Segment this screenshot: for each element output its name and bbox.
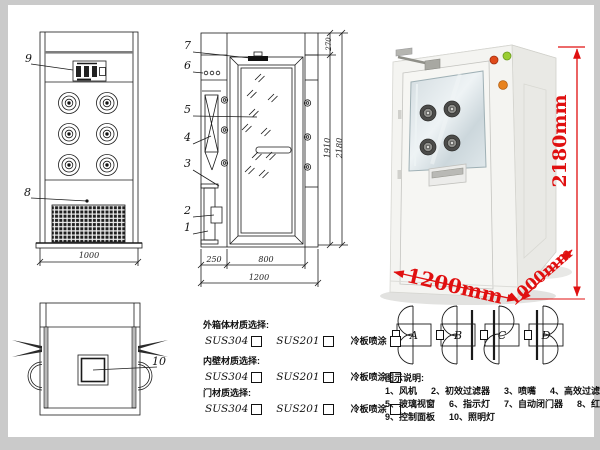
legend-title: 图示说明:	[385, 373, 424, 383]
dim-side-left: 250	[199, 256, 229, 264]
dim-side-door-height: 1910	[324, 128, 332, 168]
door-config-checkbox-b[interactable]	[436, 330, 444, 340]
dim-front-width: 1000	[69, 252, 109, 260]
part-label-3: 3	[184, 158, 191, 169]
photo-glass-window	[409, 71, 486, 171]
part-label-6: 6	[184, 60, 191, 71]
door-config-letter-a: A	[397, 329, 431, 342]
part-label-7: 7	[184, 40, 191, 51]
photo-dim-height: 2180mm	[549, 81, 571, 201]
legend-item: 5、玻璃视窗	[385, 399, 435, 409]
legend-item: 4、高效过滤器	[550, 386, 600, 396]
legend-item: 10、照明灯	[449, 412, 495, 422]
door-config-checkbox-c[interactable]	[480, 330, 488, 340]
legend-item: 9、控制面板	[385, 412, 435, 422]
option-sus201: SUS201	[276, 404, 319, 415]
dim-side-top: 270	[325, 29, 333, 59]
return-air-grille	[52, 205, 125, 242]
part-label-1: 1	[184, 222, 191, 233]
checkbox-inner-sus304[interactable]	[251, 372, 262, 383]
door-config-letter-c: C	[485, 329, 519, 342]
part-label-2: 2	[184, 205, 191, 216]
materials-row-inner: SUS304 SUS201 冷板喷涂	[205, 371, 401, 383]
option-sus304: SUS304	[205, 404, 248, 415]
legend-item: 3、喷嘴	[504, 386, 536, 396]
materials-row-door: SUS304 SUS201 冷板喷涂	[205, 403, 401, 415]
option-coldplate: 冷板喷涂	[351, 372, 387, 382]
legend-item: 1、风机	[385, 386, 417, 396]
dim-side-total-height: 2180	[336, 128, 344, 168]
legend-line-1: 1、风机 2、初效过滤器 3、喷嘴 4、高效过滤器	[385, 386, 600, 396]
materials-row-outer: SUS304 SUS201 冷板喷涂	[205, 335, 401, 347]
legend-item: 6、指示灯	[449, 399, 490, 409]
side-nozzles	[221, 97, 310, 170]
front-view-drawing	[31, 32, 142, 266]
checkbox-outer-sus304[interactable]	[251, 336, 262, 347]
option-sus201: SUS201	[276, 372, 319, 383]
part-label-5: 5	[184, 104, 191, 115]
checkbox-outer-sus201[interactable]	[323, 336, 334, 347]
part-label-9: 9	[25, 53, 32, 64]
legend-item: 7、自动闭门器	[504, 399, 563, 409]
legend-line-2: 5、玻璃视窗 6、指示灯 7、自动闭门器 8、红外线感应器	[385, 399, 600, 409]
materials-title-outer: 外箱体材质选择:	[203, 320, 269, 330]
part-label-4: 4	[184, 132, 191, 143]
legend-item: 8、红外线感应器	[577, 399, 600, 409]
nozzles-front	[59, 93, 118, 176]
part-label-8: 8	[24, 187, 31, 198]
legend-line-3: 9、控制面板 10、照明灯	[385, 412, 509, 422]
option-sus304: SUS304	[205, 336, 248, 347]
top-view-drawing	[12, 303, 168, 415]
legend-item: 2、初效过滤器	[431, 386, 490, 396]
control-panel-front	[73, 61, 106, 81]
checkbox-inner-sus201[interactable]	[323, 372, 334, 383]
checkbox-door-sus201[interactable]	[323, 404, 334, 415]
option-coldplate: 冷板喷涂	[351, 404, 387, 414]
materials-title-door: 门材质选择:	[203, 388, 251, 398]
dim-side-door: 800	[251, 256, 281, 264]
option-coldplate: 冷板喷涂	[351, 336, 387, 346]
door-config-letter-b: B	[441, 329, 475, 342]
option-sus201: SUS201	[276, 336, 319, 347]
glass-door-drawing	[230, 52, 303, 244]
glass-hatch-marks	[242, 74, 278, 178]
option-sus304: SUS304	[205, 372, 248, 383]
fan-filter-column	[201, 71, 222, 244]
dim-side-total: 1200	[239, 274, 279, 282]
checkbox-door-sus304[interactable]	[251, 404, 262, 415]
air-shower-spec-sheet: 9 8 1000 7 6 5 4 3 2 1 250 800 1200 270 …	[0, 0, 600, 450]
materials-title-inner: 内壁材质选择:	[203, 356, 260, 366]
door-swing-left	[12, 340, 42, 357]
door-config-letter-d: D	[529, 329, 563, 342]
door-config-checkbox-d[interactable]	[524, 330, 532, 340]
checkbox-outer-coldplate[interactable]	[390, 336, 401, 347]
part-label-10: 10	[152, 356, 166, 367]
door-closer-drawing	[248, 56, 268, 61]
